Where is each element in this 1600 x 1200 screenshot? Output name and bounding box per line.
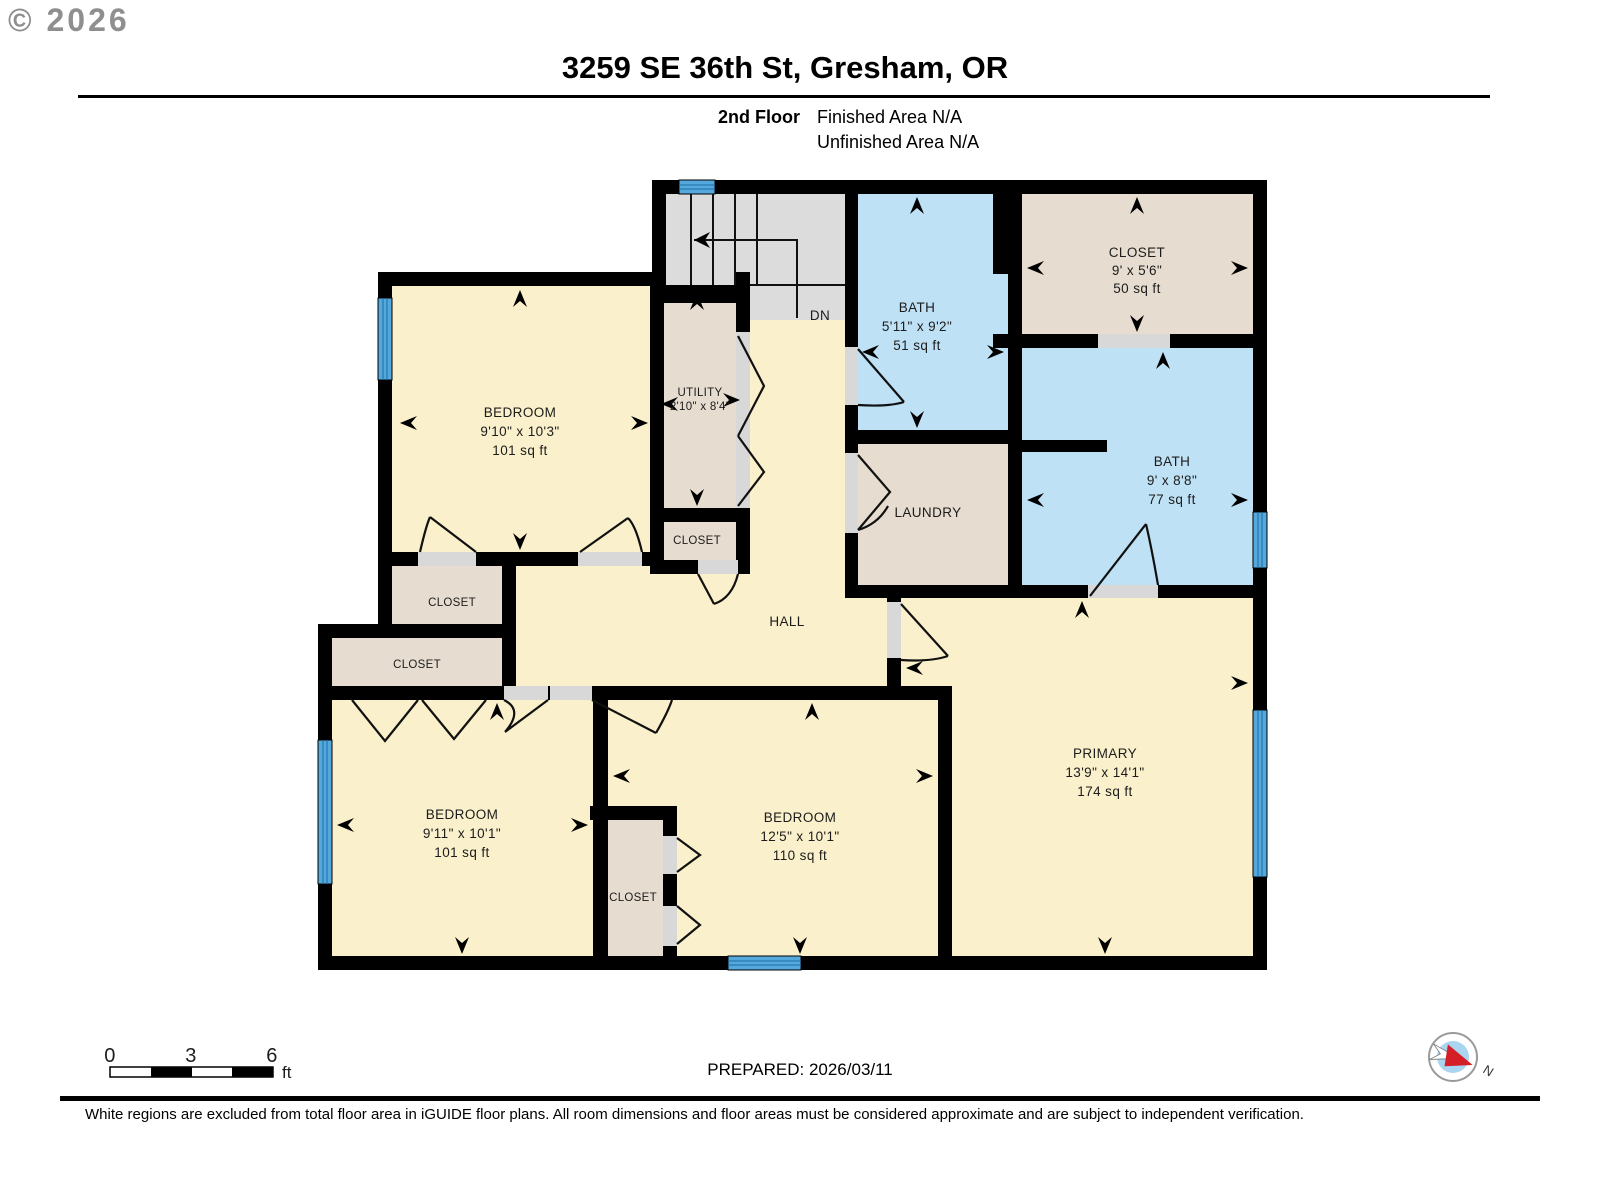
label-hall: HALL xyxy=(769,614,804,629)
label-closet-tr-area: 50 sq ft xyxy=(1113,281,1160,296)
window-bath-right xyxy=(1253,512,1267,568)
room-closet-bottom-mid xyxy=(604,816,670,963)
label-bedroom-bm-name: BEDROOM xyxy=(764,810,837,825)
label-closet-left-upper: CLOSET xyxy=(428,597,476,609)
label-bath-top-name: BATH xyxy=(899,300,936,315)
window-primary-right xyxy=(1253,710,1267,877)
window-bedroom-bl-left xyxy=(318,740,332,884)
label-bedroom-bm-area: 110 sq ft xyxy=(773,848,827,863)
prepared-date: PREPARED: 2026/03/11 xyxy=(0,1060,1600,1080)
label-closet-tr-name: CLOSET xyxy=(1109,245,1165,260)
window-bedroom-tl-left xyxy=(378,298,392,380)
label-bedroom-tl-area: 101 sq ft xyxy=(492,443,547,458)
label-closet-bottom-mid: CLOSET xyxy=(609,892,657,904)
label-bedroom-bl-dims: 9'11" x 10'1" xyxy=(423,826,501,841)
room-closet-left-upper xyxy=(390,559,509,631)
footer-divider xyxy=(60,1096,1540,1101)
label-bath-right-area: 77 sq ft xyxy=(1148,492,1195,507)
label-bath-top-area: 51 sq ft xyxy=(893,338,940,353)
label-laundry: LAUNDRY xyxy=(894,505,961,520)
room-stairs-upper xyxy=(660,190,845,285)
window-stairs-top xyxy=(679,180,715,194)
window-bedroom-bm-bottom xyxy=(728,956,801,970)
label-bath-right-name: BATH xyxy=(1154,454,1191,469)
label-bedroom-bl-area: 101 sq ft xyxy=(434,845,489,860)
label-bedroom-tl-dims: 9'10" x 10'3" xyxy=(480,424,559,439)
label-closet-left-lower: CLOSET xyxy=(393,659,441,671)
room-bath-right xyxy=(1015,341,1260,591)
floor-plan-svg: BEDROOM 9'10" x 10'3" 101 sq ft UTILITY … xyxy=(0,0,1600,1200)
label-closet-tr-dims: 9' x 5'6" xyxy=(1112,263,1162,278)
label-bedroom-bm-dims: 12'5" x 10'1" xyxy=(760,829,839,844)
label-primary-area: 174 sq ft xyxy=(1077,784,1132,799)
label-bedroom-tl-name: BEDROOM xyxy=(484,405,557,420)
label-utility-name: UTILITY xyxy=(678,387,723,399)
label-bedroom-bl-name: BEDROOM xyxy=(426,807,499,822)
room-bedroom-top-left xyxy=(385,280,657,560)
label-bath-right-dims: 9' x 8'8" xyxy=(1147,473,1197,488)
label-stairs-dn: DN xyxy=(810,308,830,323)
disclaimer-text: White regions are excluded from total fl… xyxy=(85,1106,1565,1123)
label-primary-name: PRIMARY xyxy=(1073,746,1137,761)
label-primary-dims: 13'9" x 14'1" xyxy=(1065,765,1144,780)
label-bath-top-dims: 5'11" x 9'2" xyxy=(882,319,952,334)
room-utility xyxy=(657,296,743,566)
label-utility-dims: 2'10" x 8'4" xyxy=(670,401,730,413)
floor-plan-page: © 2026 3259 SE 36th St, Gresham, OR 2nd … xyxy=(0,0,1600,1200)
label-closet-utility: CLOSET xyxy=(673,535,721,547)
